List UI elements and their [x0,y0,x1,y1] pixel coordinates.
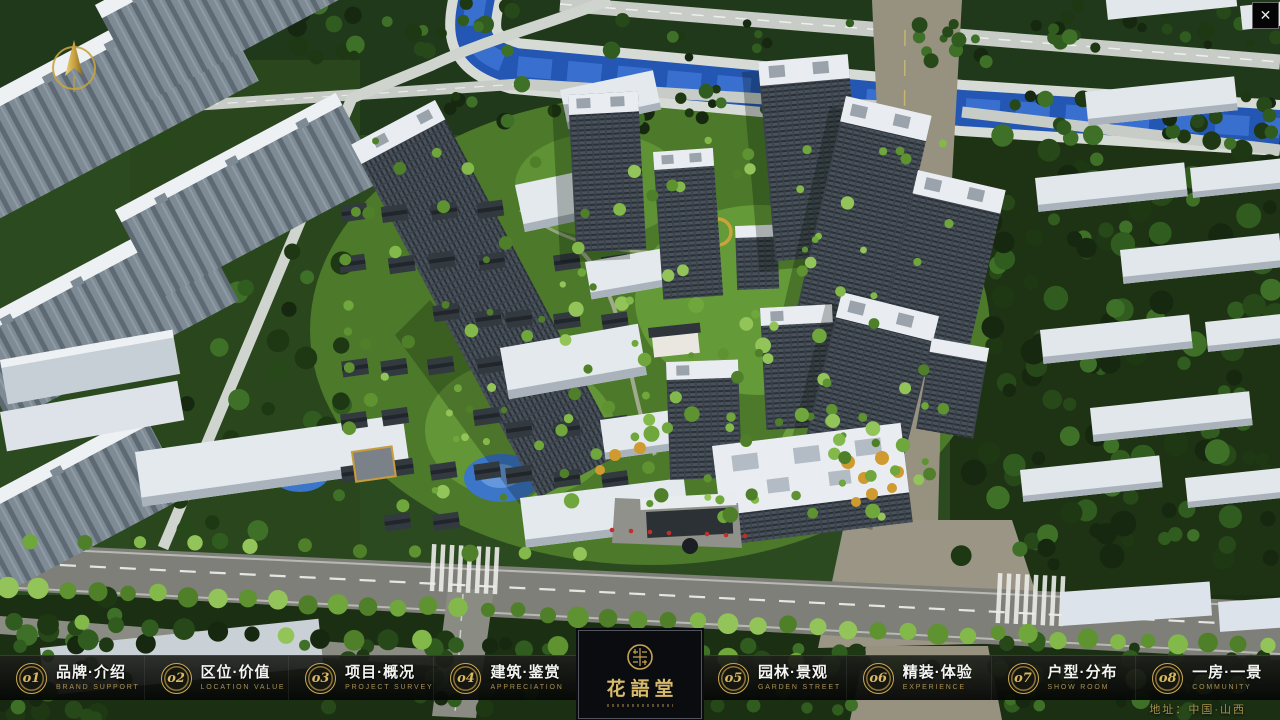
masterplan-3d-view[interactable] [0,0,1280,720]
nav-label-zh: 户型·分布 [1048,664,1118,681]
nav-label-zh: 精装·体验 [903,664,973,681]
nav-badge-07: o7 [1008,663,1039,694]
nav-item-brand[interactable]: o1 品牌·介绍 BRAND SUPPORT [0,656,144,700]
nav-label-zh: 品牌·介绍 [56,664,140,681]
nav-item-garden[interactable]: o5 园林·景观 GARDEN STREET [702,656,846,700]
nav-label-en: SHOW ROOM [1048,684,1118,692]
nav-group-right: o5 园林·景观 GARDEN STREET o6 精装·体验 EXPERIEN… [702,656,1280,700]
brand-name: 花語堂 [606,674,678,701]
nav-badge-01: o1 [16,663,47,694]
nav-label-en: GARDEN STREET [758,684,841,692]
nav-badge-02: o2 [161,663,192,694]
nav-item-interior[interactable]: o6 精装·体验 EXPERIENCE [846,656,991,700]
nav-group-left: o1 品牌·介绍 BRAND SUPPORT o2 区位·价值 LOCATION… [0,656,578,700]
nav-label-en: LOCATION VALUE [201,684,286,692]
nav-label-en: PROJECT SURVEY [345,684,433,692]
nav-badge-06: o6 [863,663,894,694]
nav-badge-03: o3 [305,663,336,694]
nav-item-views[interactable]: o8 一房·一景 COMMUNITY [1135,656,1280,700]
nav-label-zh: 一房·一景 [1192,664,1262,681]
nav-badge-05: o5 [718,663,749,694]
project-address: 地址：中国·山西 [1149,701,1246,717]
nav-label-zh: 建筑·鉴赏 [490,664,563,681]
nav-item-location[interactable]: o2 区位·价值 LOCATION VALUE [144,656,289,700]
brand-tagline-line [607,704,673,707]
nav-label-en: APPRECIATION [490,684,563,692]
nav-item-floorplan[interactable]: o7 户型·分布 SHOW ROOM [991,656,1136,700]
presentation-window: ✕ o1 品牌·介绍 BRAND SUPPORT o2 区位·价值 LOCATI… [0,0,1280,720]
close-icon: ✕ [1260,7,1272,24]
nav-item-architecture[interactable]: o4 建筑·鉴赏 APPRECIATION [433,656,578,700]
nav-badge-04: o4 [450,663,481,694]
nav-label-en: EXPERIENCE [903,684,973,692]
close-button[interactable]: ✕ [1252,2,1279,29]
nav-badge-08: o8 [1152,663,1183,694]
brand-seal-icon [626,643,654,671]
nav-label-en: BRAND SUPPORT [56,684,140,692]
brand-logo-panel: 花語堂 [578,630,702,719]
nav-item-project[interactable]: o3 项目·概况 PROJECT SURVEY [288,656,433,700]
nav-label-zh: 园林·景观 [758,664,841,681]
nav-label-zh: 项目·概况 [345,664,433,681]
nav-label-en: COMMUNITY [1192,684,1262,692]
nav-label-zh: 区位·价值 [201,664,286,681]
